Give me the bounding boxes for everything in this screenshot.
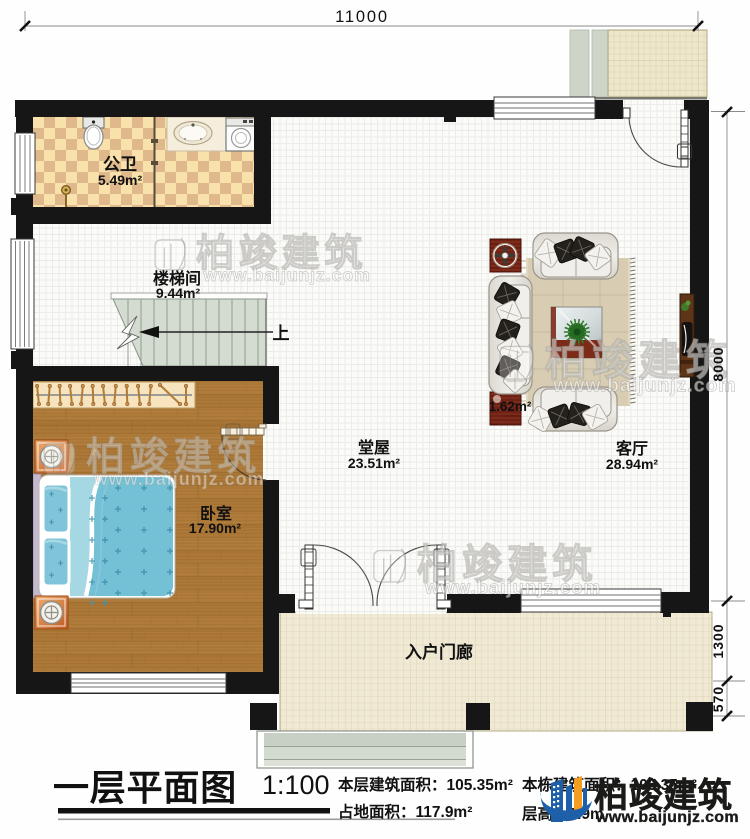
svg-text:1:100: 1:100 bbox=[262, 770, 330, 800]
svg-text:23.51m²: 23.51m² bbox=[348, 455, 400, 471]
svg-text:www.baijunjz.com: www.baijunjz.com bbox=[595, 809, 739, 826]
svg-text:一层平面图: 一层平面图 bbox=[53, 767, 237, 808]
svg-text:28.94m²: 28.94m² bbox=[606, 456, 658, 472]
svg-text:17.90m²: 17.90m² bbox=[189, 520, 241, 536]
svg-text:入户门廊: 入户门廊 bbox=[405, 642, 473, 662]
svg-text:www.baijunjz.com: www.baijunjz.com bbox=[552, 374, 736, 396]
svg-text:9.44m²: 9.44m² bbox=[156, 285, 201, 301]
svg-text:www.baijunjz.com: www.baijunjz.com bbox=[93, 469, 265, 489]
svg-text:8000: 8000 bbox=[710, 346, 726, 381]
svg-text:占地面积：117.9m²: 占地面积：117.9m² bbox=[338, 802, 472, 821]
svg-text:1.62m²: 1.62m² bbox=[489, 399, 532, 414]
svg-text:5.49m²: 5.49m² bbox=[98, 172, 143, 188]
svg-text:上: 上 bbox=[273, 324, 290, 343]
svg-text:www.baijunjz.com: www.baijunjz.com bbox=[424, 577, 601, 598]
svg-text:11000: 11000 bbox=[335, 8, 389, 26]
svg-text:www.baijunjz.com: www.baijunjz.com bbox=[202, 265, 370, 285]
svg-text:本层建筑面积：105.35m²: 本层建筑面积：105.35m² bbox=[338, 775, 513, 794]
svg-text:1300: 1300 bbox=[710, 623, 726, 658]
svg-text:570: 570 bbox=[710, 686, 726, 712]
